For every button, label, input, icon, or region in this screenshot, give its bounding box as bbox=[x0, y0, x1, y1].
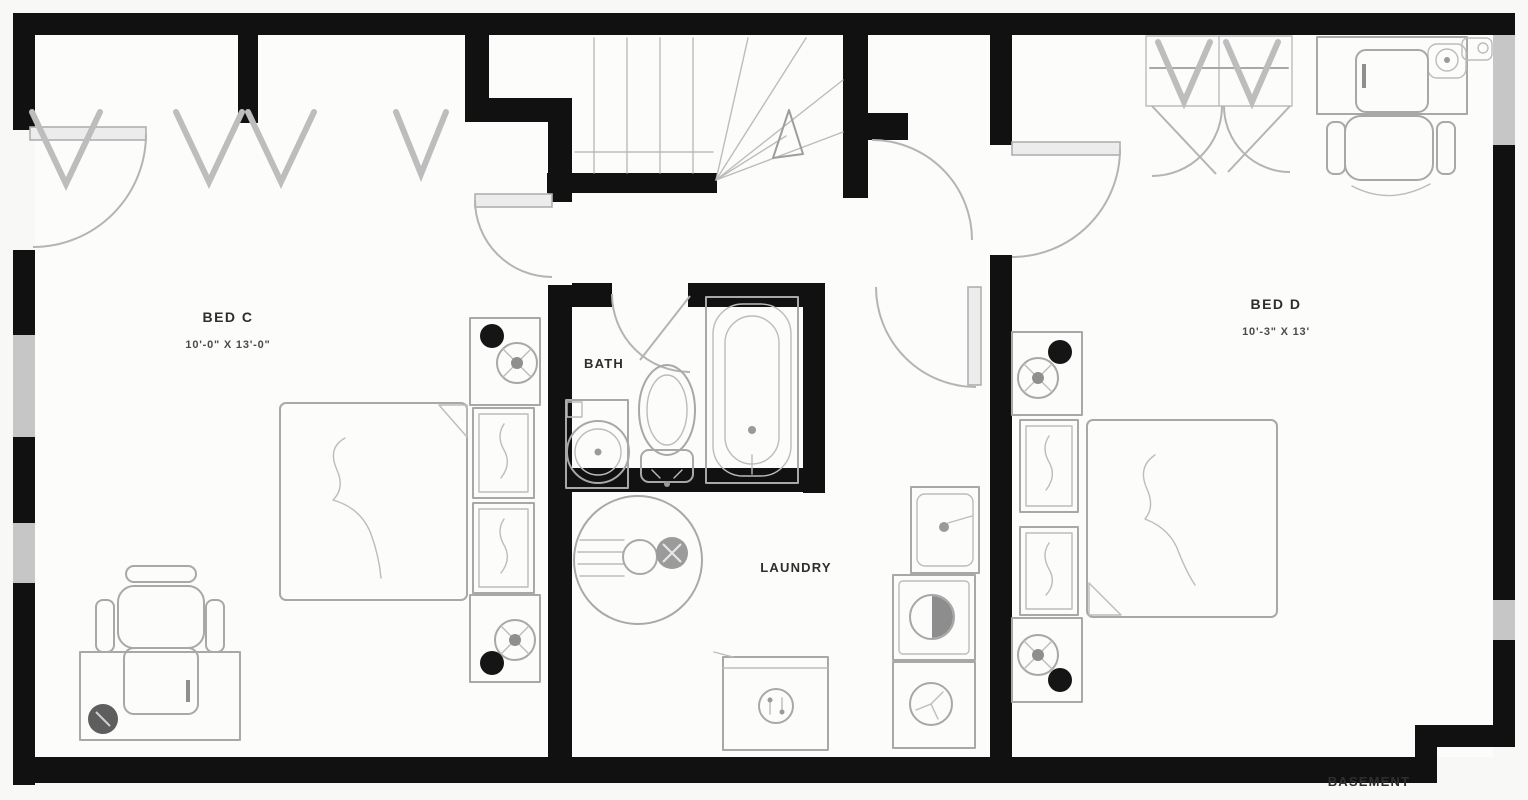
floor-plan-drawing: BED C 10'-0" X 13'-0" BED D 10'-3" X 13'… bbox=[0, 0, 1528, 800]
stair-south-wall bbox=[547, 173, 717, 193]
laundry-label: LAUNDRY bbox=[760, 560, 831, 575]
plan-title: BASEMENT bbox=[1328, 774, 1411, 789]
window bbox=[1493, 600, 1515, 640]
drain-icon bbox=[748, 426, 756, 434]
floor-area bbox=[35, 35, 1493, 757]
stair-east-wall bbox=[843, 35, 868, 198]
laundry-east-wall bbox=[990, 255, 1012, 757]
bed-c-label: BED C bbox=[202, 309, 253, 325]
bath-laundry-west-wall bbox=[548, 285, 572, 757]
floor-plan: BED C 10'-0" X 13'-0" BED D 10'-3" X 13'… bbox=[0, 0, 1528, 800]
bath-east-wall bbox=[803, 283, 825, 493]
bed-c-dimensions: 10'-0" X 13'-0" bbox=[185, 339, 270, 351]
bed-d-label: BED D bbox=[1250, 296, 1301, 312]
bath-north-wall bbox=[572, 283, 612, 307]
window bbox=[1493, 35, 1515, 145]
bed-d-west-wall bbox=[990, 35, 1012, 145]
bed-d-dimensions: 10'-3" X 13' bbox=[1242, 326, 1310, 338]
window bbox=[13, 335, 35, 437]
window bbox=[13, 523, 35, 583]
bath-label: BATH bbox=[584, 356, 624, 371]
